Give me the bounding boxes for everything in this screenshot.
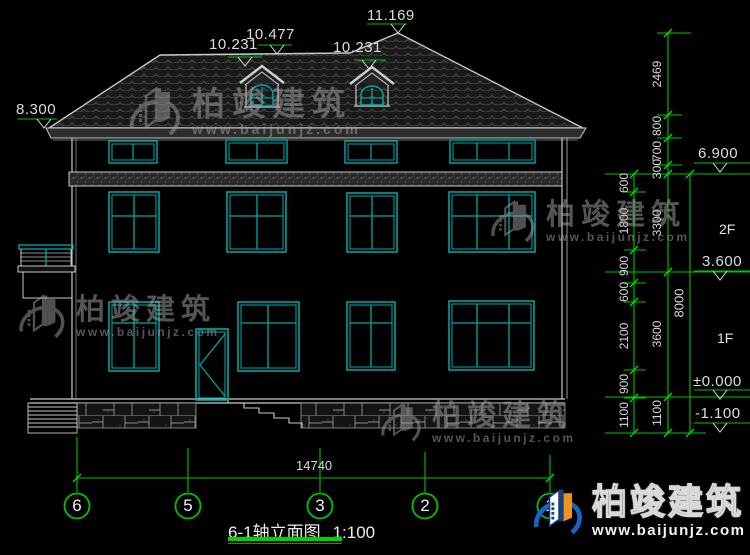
elevation-second-floor: 3.600 [702, 253, 742, 270]
dim-inner-3: 900 [617, 256, 631, 276]
dim-total-horizontal: 14740 [296, 458, 332, 473]
watermark-logo-icon [126, 80, 184, 144]
watermark-brand: 柏竣建筑 [432, 401, 576, 431]
elevation-ridge: 11.169 [367, 7, 415, 24]
watermark: 柏竣建筑 www.baijunjz.com [16, 288, 220, 346]
axis-bubble-6: 6 [72, 496, 81, 516]
watermark-url: www.baijunjz.com [546, 230, 690, 244]
watermark-url: www.baijunjz.com [76, 325, 220, 339]
brand-logo-text: 柏竣建筑 [592, 485, 745, 520]
dim-outer-7: 1100 [650, 400, 664, 426]
dim-inner-7: 1100 [617, 402, 631, 428]
watermark-url: www.baijunjz.com [192, 121, 361, 137]
title-underline [228, 537, 342, 541]
elevation-linework [0, 0, 750, 555]
axis-bubble-3: 3 [315, 496, 324, 516]
side-steps [28, 403, 77, 433]
floor-band [69, 172, 562, 186]
watermark: 柏竣建筑 www.baijunjz.com [488, 194, 690, 250]
watermark-brand: 柏竣建筑 [192, 87, 361, 122]
dim-outer-6: 3600 [650, 321, 664, 348]
dim-inner-6: 900 [617, 374, 631, 394]
watermark-logo-icon [16, 288, 68, 346]
watermark: 柏竣建筑 www.baijunjz.com [126, 80, 361, 144]
watermark: 柏竣建筑 www.baijunjz.com [378, 398, 576, 448]
dim-inner-4: 600 [617, 282, 631, 302]
elevation-base: -1.100 [695, 405, 741, 422]
elevation-ground: ±0.000 [693, 373, 742, 390]
title-underline-2 [228, 543, 342, 544]
brand-logo-url: www.baijunjz.com [592, 522, 745, 539]
brand-logo-icon [530, 482, 586, 542]
watermark-brand: 柏竣建筑 [76, 295, 220, 325]
cad-elevation-drawing: 8.300 10.231 10.477 10.231 11.169 6.900 … [0, 0, 750, 555]
floor-label-1f: 1F [717, 330, 733, 346]
axis-bubble-5: 5 [183, 496, 192, 516]
second-floor-windows [109, 192, 535, 252]
dim-outer-1: 2469 [650, 61, 664, 88]
axis-bubbles [65, 494, 563, 519]
entry-steps [228, 400, 302, 428]
dim-outer-2: 800 [650, 116, 664, 136]
watermark-brand: 柏竣建筑 [546, 200, 690, 230]
watermark-logo-icon [488, 194, 538, 250]
dim-outer-4: 300 [650, 159, 664, 179]
watermark-url: www.baijunjz.com [432, 431, 576, 445]
dim-inner-5: 2100 [617, 323, 631, 350]
floor-label-2f: 2F [719, 221, 735, 237]
watermark-logo-icon [378, 398, 424, 448]
dim-inner-1: 600 [617, 173, 631, 193]
axis-bubble-2: 2 [420, 496, 429, 516]
elevation-dormer-eave-right: 10.231 [333, 39, 382, 56]
elevation-left-eave: 8.300 [16, 101, 56, 118]
elevation-attic: 6.900 [698, 145, 738, 162]
brand-logo: 柏竣建筑 www.baijunjz.com [530, 482, 745, 542]
dim-total-vertical: 8000 [672, 289, 687, 318]
elevation-dormer-ridge: 10.477 [246, 26, 295, 43]
